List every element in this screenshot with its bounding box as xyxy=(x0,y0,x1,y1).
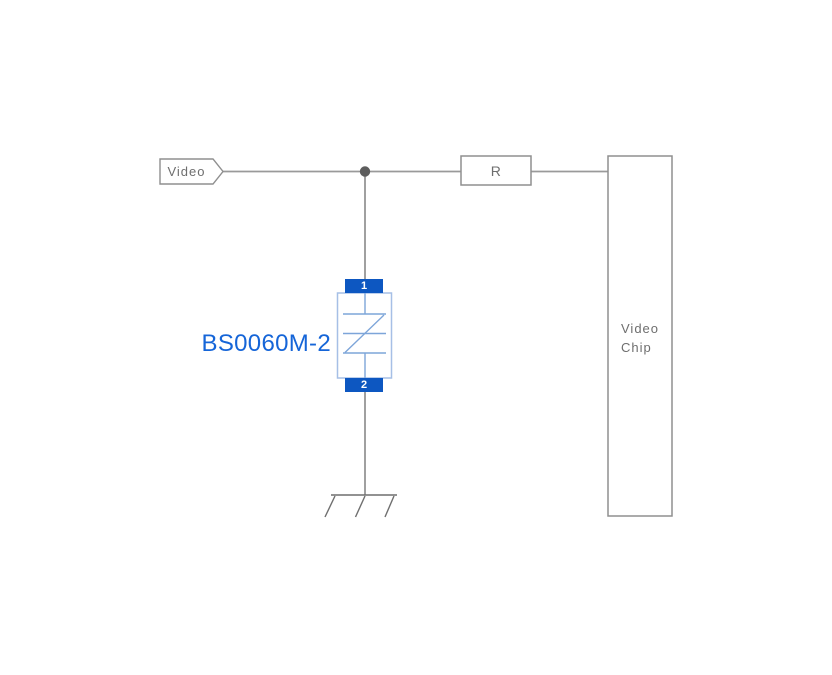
video-chip-label-line1: Video xyxy=(621,319,659,338)
tvs-pin2-number: 2 xyxy=(345,378,383,392)
schematic-drawing xyxy=(0,0,832,675)
schematic-canvas: Video R Video Chip BS0060M-2 1 2 xyxy=(0,0,832,675)
component-part-number: BS0060M-2 xyxy=(180,330,331,358)
net-tag-label: Video xyxy=(160,159,213,184)
junction-dot-icon xyxy=(360,166,370,176)
ground-icon xyxy=(325,495,397,517)
video-chip-label-line2: Chip xyxy=(621,338,659,357)
video-chip-label: Video Chip xyxy=(621,319,659,357)
resistor-label: R xyxy=(461,156,531,185)
tvs-pin1-number: 1 xyxy=(345,279,383,293)
